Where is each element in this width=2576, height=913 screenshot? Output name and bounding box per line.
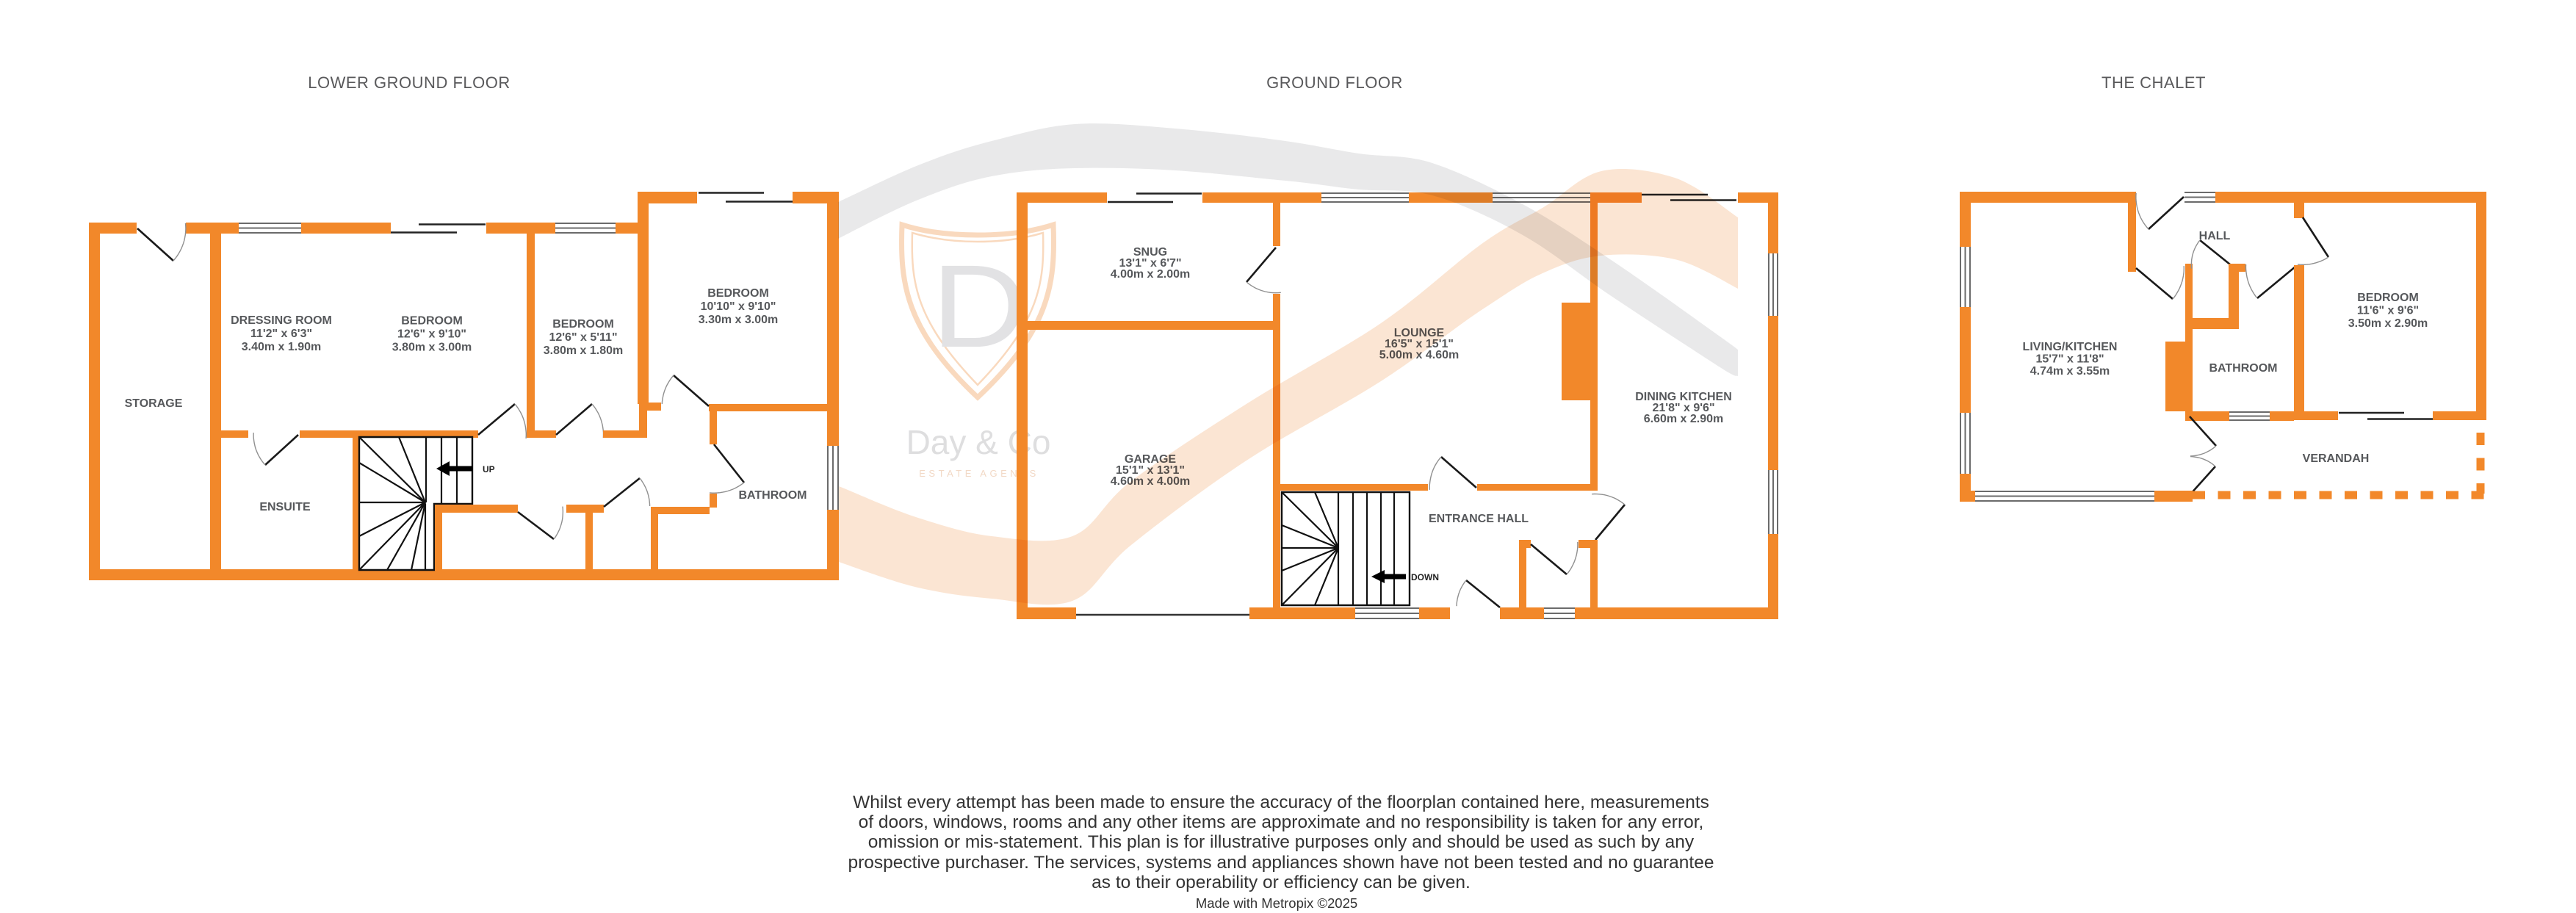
svg-text:12'6" x 9'10": 12'6" x 9'10": [397, 328, 466, 341]
svg-text:11'2" x 6'3": 11'2" x 6'3": [250, 328, 312, 340]
svg-text:11'6" x 9'6": 11'6" x 9'6": [2357, 305, 2419, 317]
svg-text:3.80m x 3.00m: 3.80m x 3.00m: [392, 342, 472, 354]
svg-text:3.30m x 3.00m: 3.30m x 3.00m: [699, 314, 779, 326]
svg-text:10'10" x 9'10": 10'10" x 9'10": [701, 300, 776, 313]
svg-text:of doors, windows, rooms and a: of doors, windows, rooms and any other i…: [859, 812, 1704, 832]
svg-text:Day & Co: Day & Co: [906, 423, 1051, 461]
svg-text:12'6" x 5'11": 12'6" x 5'11": [549, 331, 617, 344]
svg-text:6.60m x 2.90m: 6.60m x 2.90m: [1644, 413, 1724, 425]
svg-text:BEDROOM: BEDROOM: [2357, 292, 2419, 304]
svg-text:15'7" x 11'8": 15'7" x 11'8": [2035, 353, 2104, 366]
svg-text:Made with Metropix ©2025: Made with Metropix ©2025: [1196, 895, 1357, 911]
svg-text:ENSUITE: ENSUITE: [259, 501, 311, 513]
svg-text:LOWER GROUND FLOOR: LOWER GROUND FLOOR: [308, 73, 510, 92]
svg-text:omission or mis-statement. Thi: omission or mis-statement. This plan is …: [868, 832, 1695, 852]
svg-text:BEDROOM: BEDROOM: [401, 315, 463, 328]
svg-text:3.80m x 1.80m: 3.80m x 1.80m: [544, 344, 624, 357]
svg-text:UP: UP: [483, 464, 495, 474]
svg-text:VERANDAH: VERANDAH: [2303, 452, 2370, 465]
svg-text:as to their operability or eff: as to their operability or efficiency ca…: [1092, 873, 1471, 892]
svg-text:3.40m x 1.90m: 3.40m x 1.90m: [242, 341, 322, 353]
svg-text:4.74m x 3.55m: 4.74m x 3.55m: [2030, 365, 2110, 378]
svg-text:DOWN: DOWN: [1411, 572, 1439, 582]
svg-text:DRESSING ROOM: DRESSING ROOM: [231, 314, 332, 327]
svg-text:ENTRANCE HALL: ENTRANCE HALL: [1429, 513, 1529, 525]
svg-text:THE CHALET: THE CHALET: [2101, 73, 2206, 92]
svg-text:BATHROOM: BATHROOM: [2209, 362, 2277, 375]
svg-text:BATHROOM: BATHROOM: [738, 489, 807, 502]
svg-text:LIVING/KITCHEN: LIVING/KITCHEN: [2023, 341, 2118, 353]
svg-text:STORAGE: STORAGE: [125, 397, 183, 410]
svg-text:3.50m x 2.90m: 3.50m x 2.90m: [2348, 317, 2428, 330]
svg-text:HALL: HALL: [2199, 230, 2231, 242]
svg-text:GROUND FLOOR: GROUND FLOOR: [1266, 73, 1403, 92]
svg-text:BEDROOM: BEDROOM: [552, 318, 614, 331]
svg-text:BEDROOM: BEDROOM: [707, 287, 769, 300]
svg-text:D: D: [931, 241, 1028, 372]
svg-text:prospective purchaser. The ser: prospective purchaser. The services, sys…: [848, 853, 1714, 873]
svg-text:4.00m x 2.00m: 4.00m x 2.00m: [1111, 268, 1191, 281]
svg-text:Whilst every attempt has been: Whilst every attempt has been made to en…: [853, 793, 1709, 812]
